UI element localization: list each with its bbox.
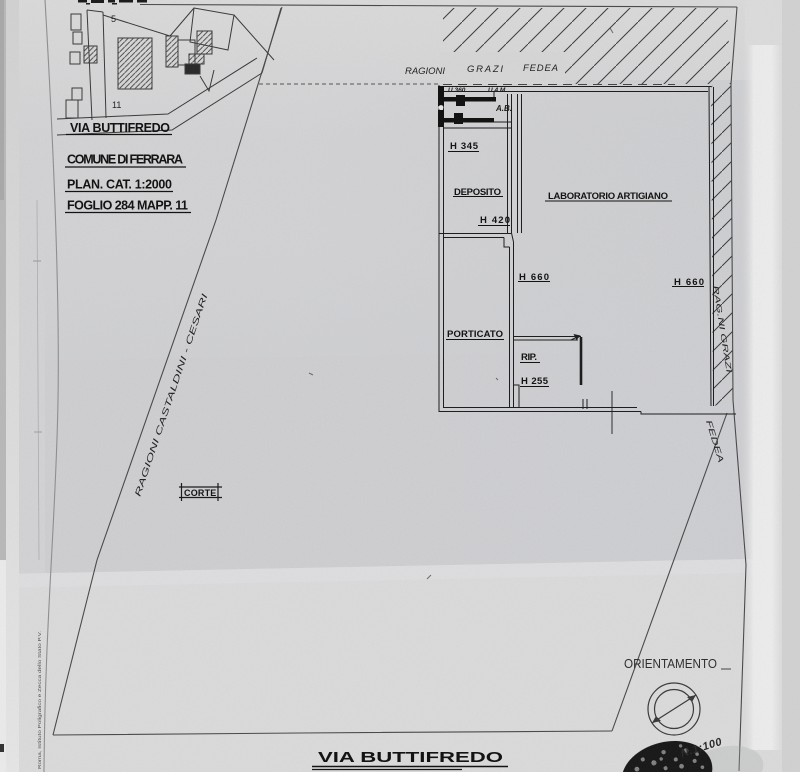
svg-text:Roma, Istituto Poligrafico e: Roma, Istituto Poligrafico e Zecca dello… bbox=[37, 631, 42, 769]
